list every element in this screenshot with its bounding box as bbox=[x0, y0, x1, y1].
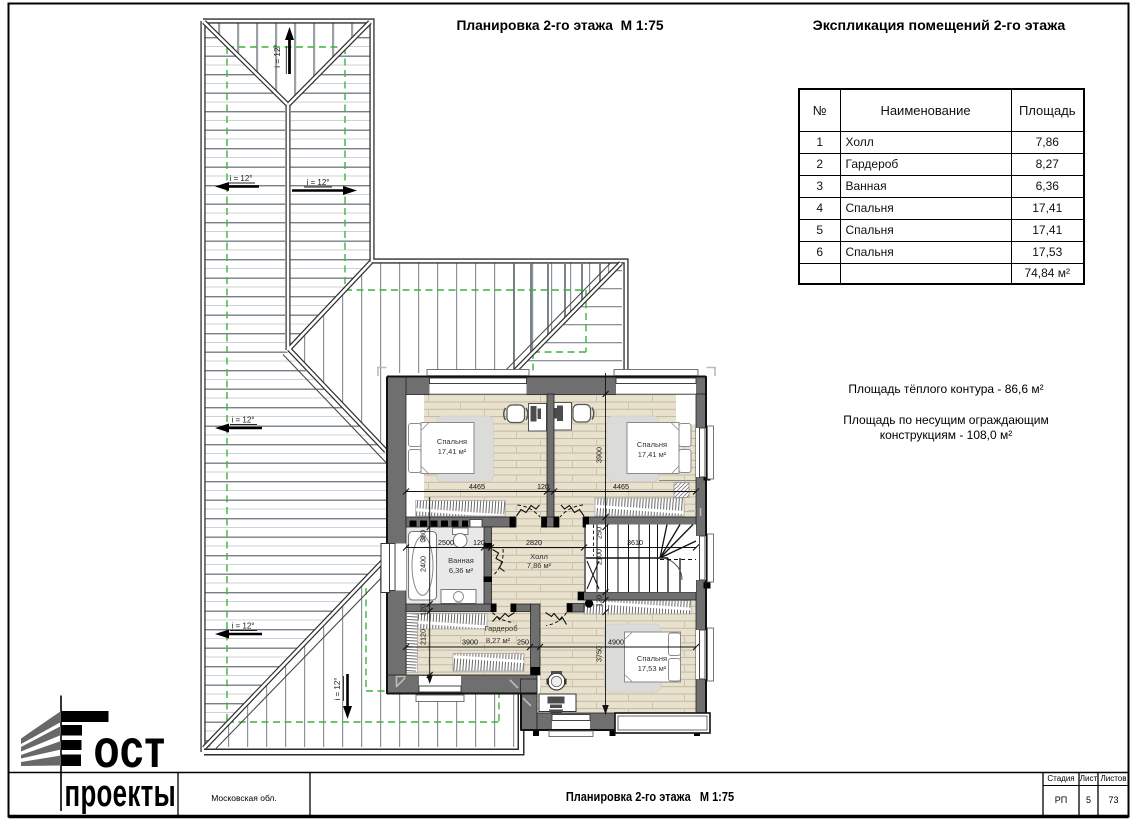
svg-text:17,41 м²: 17,41 м² bbox=[638, 450, 667, 459]
svg-text:2100: 2100 bbox=[595, 549, 604, 565]
svg-text:250: 250 bbox=[517, 638, 529, 647]
svg-text:2500: 2500 bbox=[438, 538, 454, 547]
svg-text:120: 120 bbox=[419, 604, 428, 616]
svg-text:i = 12°: i = 12° bbox=[307, 178, 330, 187]
svg-text:8,27 м²: 8,27 м² bbox=[486, 636, 511, 645]
svg-text:120: 120 bbox=[595, 595, 604, 607]
svg-text:Холл: Холл bbox=[530, 552, 548, 561]
svg-text:17,41 м²: 17,41 м² bbox=[438, 447, 467, 456]
svg-text:120: 120 bbox=[473, 538, 485, 547]
svg-text:3610: 3610 bbox=[627, 538, 643, 547]
svg-text:ост: ост bbox=[94, 719, 166, 779]
svg-text:6,36 м²: 6,36 м² bbox=[449, 566, 474, 575]
svg-text:Спальня: Спальня bbox=[637, 654, 667, 663]
svg-text:Гардероб: Гардероб bbox=[485, 624, 518, 633]
svg-text:3750: 3750 bbox=[595, 646, 604, 662]
svg-text:i = 12°: i = 12° bbox=[333, 678, 342, 701]
svg-text:7,86 м²: 7,86 м² bbox=[527, 561, 552, 570]
svg-text:i = 12°: i = 12° bbox=[232, 622, 255, 631]
svg-text:проекты: проекты bbox=[65, 772, 177, 814]
svg-text:4900: 4900 bbox=[608, 638, 624, 647]
svg-text:4465: 4465 bbox=[469, 482, 485, 491]
svg-text:3900: 3900 bbox=[595, 447, 604, 463]
svg-text:i = 12°: i = 12° bbox=[273, 44, 282, 68]
svg-text:Спальня: Спальня bbox=[437, 437, 467, 446]
svg-text:17,53 м²: 17,53 м² bbox=[638, 664, 667, 673]
svg-text:3900: 3900 bbox=[462, 638, 478, 647]
svg-text:2400: 2400 bbox=[419, 556, 428, 572]
svg-text:4465: 4465 bbox=[613, 482, 629, 491]
svg-text:2120: 2120 bbox=[419, 629, 428, 645]
svg-text:120: 120 bbox=[537, 482, 549, 491]
svg-text:i = 12°: i = 12° bbox=[230, 174, 253, 183]
svg-text:250: 250 bbox=[595, 527, 604, 539]
svg-text:Спальня: Спальня bbox=[637, 440, 667, 449]
svg-text:Ванная: Ванная bbox=[448, 556, 474, 565]
svg-text:380: 380 bbox=[419, 530, 428, 542]
svg-text:i = 12°: i = 12° bbox=[232, 416, 255, 425]
svg-text:2820: 2820 bbox=[526, 538, 542, 547]
